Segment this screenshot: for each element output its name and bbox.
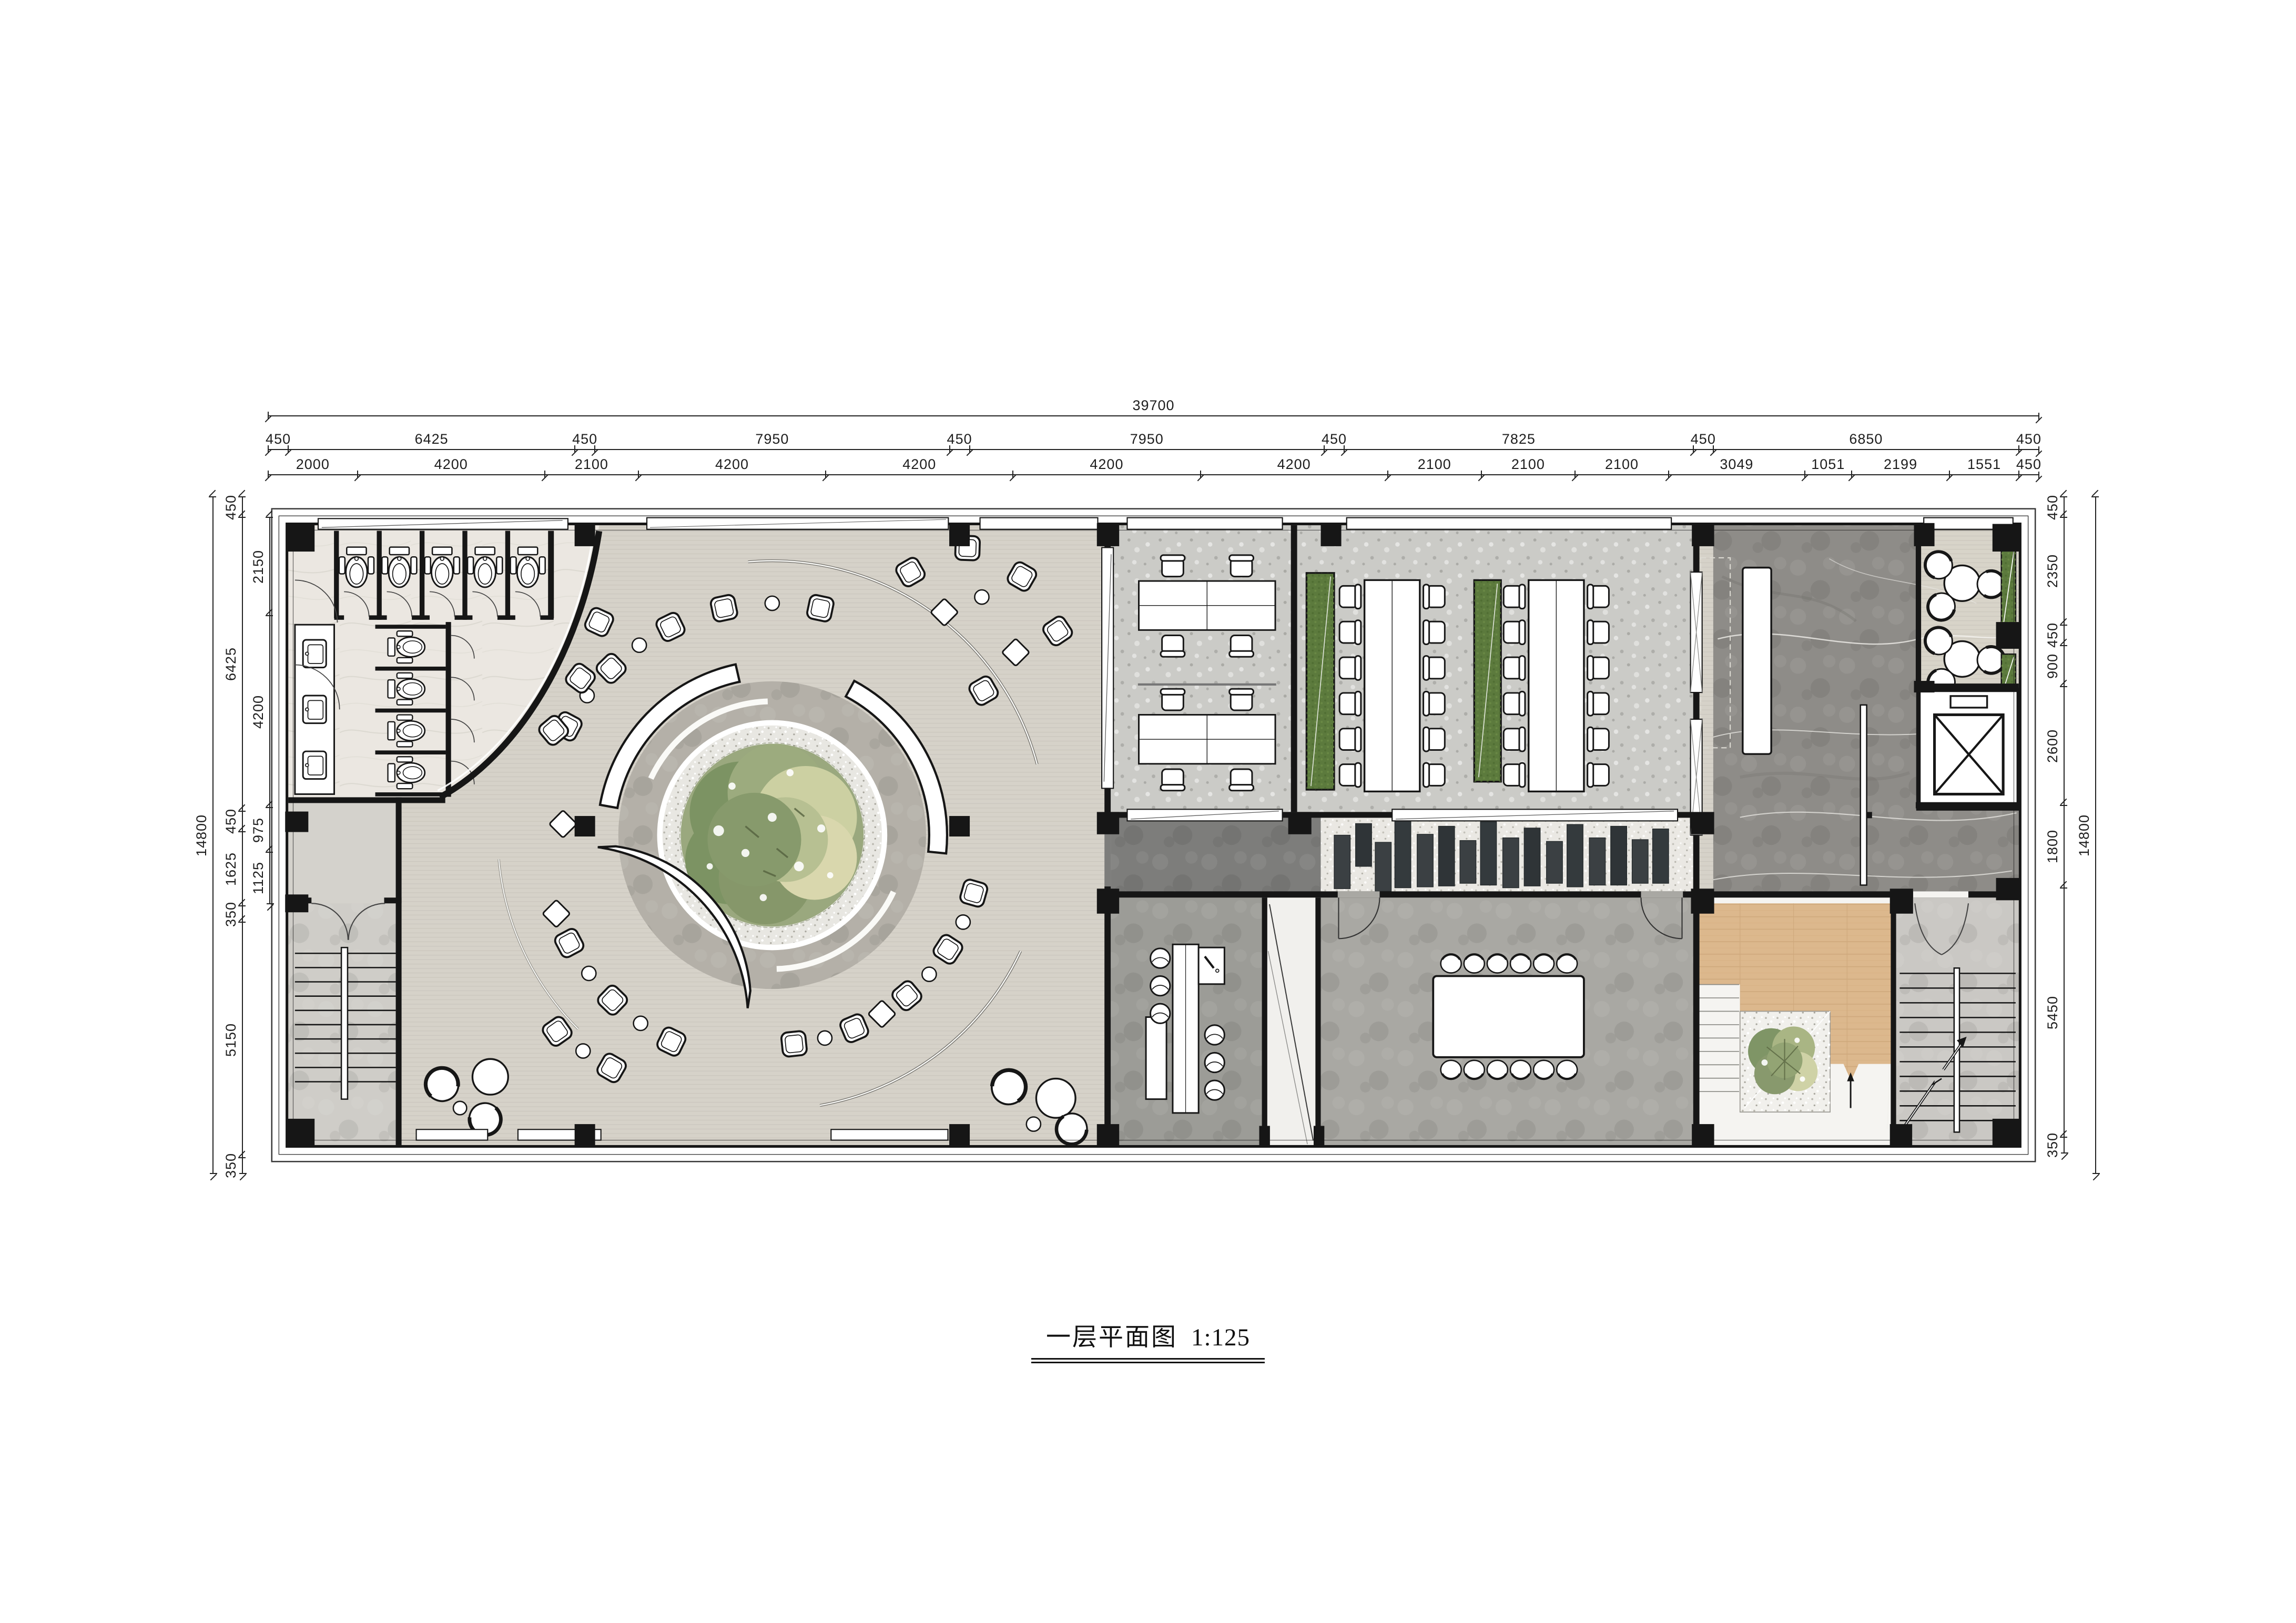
dim-segment: 900 <box>2047 646 2065 687</box>
dim-segment: 39700 <box>268 399 2039 416</box>
lobby-screen <box>1861 705 1867 885</box>
dim-label: 6425 <box>223 647 239 681</box>
dim-label: 4200 <box>902 457 936 472</box>
dim-segment: 2600 <box>2047 687 2065 805</box>
dim-label: 900 <box>2045 654 2061 679</box>
dim-segment: 4200 <box>638 457 826 475</box>
dim-segment: 2100 <box>545 457 638 475</box>
dim-segment: 2350 <box>2047 517 2065 625</box>
dim-label: 975 <box>250 818 267 843</box>
dim-label: 6425 <box>415 432 449 446</box>
dim-segment: 450 <box>268 432 288 450</box>
dim-segment: 6425 <box>288 432 575 450</box>
dim-label: 14800 <box>194 814 210 856</box>
dim-segment: 14800 <box>196 497 214 1173</box>
dim-segment: 2150 <box>252 517 270 616</box>
dim-label: 5150 <box>223 1023 239 1057</box>
dim-segment: 5150 <box>225 922 243 1158</box>
dim-segment: 7950 <box>595 432 949 450</box>
dim-right-main: 4502350450900260018005450350 <box>2047 497 2065 1153</box>
dim-segment: 450 <box>1324 432 1344 450</box>
dim-label: 2000 <box>296 457 330 472</box>
dim-segment: 1551 <box>1949 457 2019 475</box>
dim-label: 4200 <box>250 695 267 729</box>
dim-label: 2150 <box>250 549 267 583</box>
dim-label: 450 <box>223 809 239 834</box>
planter-strip-1 <box>1306 573 1334 790</box>
dim-label: 2100 <box>1511 457 1545 472</box>
dim-segment: 450 <box>2019 457 2039 475</box>
dim-left-inner: 215042009751125 <box>252 517 270 904</box>
dim-label: 6850 <box>1849 432 1883 446</box>
dim-segment: 14800 <box>2078 497 2096 1173</box>
dim-segment: 450 <box>950 432 970 450</box>
dim-label: 7950 <box>755 432 789 446</box>
dim-segment: 1051 <box>1805 457 1852 475</box>
dim-segment: 4200 <box>1201 457 1388 475</box>
dim-label: 4200 <box>1090 457 1123 472</box>
dim-segment: 4200 <box>358 457 545 475</box>
dim-label: 1125 <box>250 862 267 894</box>
dim-segment: 4200 <box>826 457 1013 475</box>
dim-label: 2100 <box>1418 457 1451 472</box>
dim-segment: 6425 <box>225 517 243 811</box>
dim-top-detail: 2000420021004200420042004200210021002100… <box>268 457 2039 475</box>
dim-label: 450 <box>2016 432 2041 446</box>
floor-plan <box>268 497 2039 1173</box>
dim-label: 450 <box>223 495 239 520</box>
dim-top-total: 39700 <box>268 399 2039 416</box>
dim-segment: 1625 <box>225 832 243 906</box>
dim-segment: 2100 <box>1388 457 1481 475</box>
dim-left-total: 14800 <box>196 497 214 1173</box>
dim-segment: 4200 <box>252 616 270 808</box>
reception-desk <box>1743 568 1771 754</box>
dim-left-main: 450642545016253505150350 <box>225 497 243 1173</box>
drawing-title: 一层平面图1:125 <box>1031 1316 1265 1360</box>
dim-segment: 2100 <box>1481 457 1575 475</box>
dim-label: 350 <box>223 1153 239 1178</box>
dim-segment: 6850 <box>1713 432 2019 450</box>
dim-segment: 7825 <box>1344 432 1693 450</box>
dim-label: 450 <box>2045 495 2061 520</box>
dim-label: 2350 <box>2045 554 2061 588</box>
dim-segment: 3049 <box>1669 457 1805 475</box>
dim-segment: 450 <box>575 432 595 450</box>
dim-label: 4200 <box>434 457 468 472</box>
dim-label: 450 <box>947 432 972 446</box>
dim-label: 450 <box>1322 432 1347 446</box>
dim-label: 2600 <box>2045 729 2061 763</box>
dim-segment: 2000 <box>268 457 358 475</box>
dim-label: 14800 <box>2076 814 2092 856</box>
dim-label: 7950 <box>1130 432 1164 446</box>
dim-label: 1800 <box>2045 830 2061 863</box>
dim-label: 3049 <box>1720 457 1753 472</box>
title-text: 一层平面图 <box>1046 1324 1177 1351</box>
drawing-sheet: 39700 4506425450795045079504507825450685… <box>0 0 2296 1623</box>
dim-label: 7825 <box>1502 432 1536 446</box>
dim-label: 5450 <box>2045 996 2061 1029</box>
dim-segment: 5450 <box>2047 888 2065 1137</box>
dim-label: 39700 <box>1132 399 1174 413</box>
dim-label: 450 <box>2016 457 2041 472</box>
dim-label: 450 <box>1691 432 1716 446</box>
dim-label: 2199 <box>1884 457 1917 472</box>
dim-label: 450 <box>2045 622 2061 648</box>
dim-segment: 450 <box>1693 432 1713 450</box>
dim-label: 350 <box>2045 1132 2061 1158</box>
dim-segment: 2199 <box>1852 457 1950 475</box>
terrace-tree <box>1748 1026 1817 1094</box>
dim-right-total: 14800 <box>2078 497 2096 1173</box>
dim-segment: 450 <box>2019 432 2039 450</box>
dim-label: 2100 <box>1605 457 1639 472</box>
dim-label: 2100 <box>575 457 608 472</box>
dim-segment: 350 <box>2047 1137 2065 1153</box>
dim-segment: 975 <box>252 808 270 852</box>
dim-label: 4200 <box>1277 457 1311 472</box>
dim-label: 1051 <box>1811 457 1845 472</box>
title-scale: 1:125 <box>1191 1324 1250 1351</box>
dim-segment: 1800 <box>2047 805 2065 888</box>
dim-label: 450 <box>266 432 291 446</box>
elevator <box>1918 690 2019 809</box>
dim-label: 1551 <box>1967 457 2001 472</box>
dim-top-grid: 45064254507950450795045078254506850450 <box>268 432 2039 450</box>
dim-segment: 4200 <box>1013 457 1200 475</box>
dim-segment: 350 <box>225 1158 243 1173</box>
planter-strip-2 <box>1474 580 1501 781</box>
dim-segment: 2100 <box>1575 457 1669 475</box>
dim-label: 450 <box>572 432 597 446</box>
dim-label: 1625 <box>223 852 239 886</box>
dim-label: 4200 <box>715 457 749 472</box>
dim-segment: 7950 <box>970 432 1324 450</box>
dim-segment: 1125 <box>252 852 270 904</box>
wall-planters <box>2002 549 2016 692</box>
